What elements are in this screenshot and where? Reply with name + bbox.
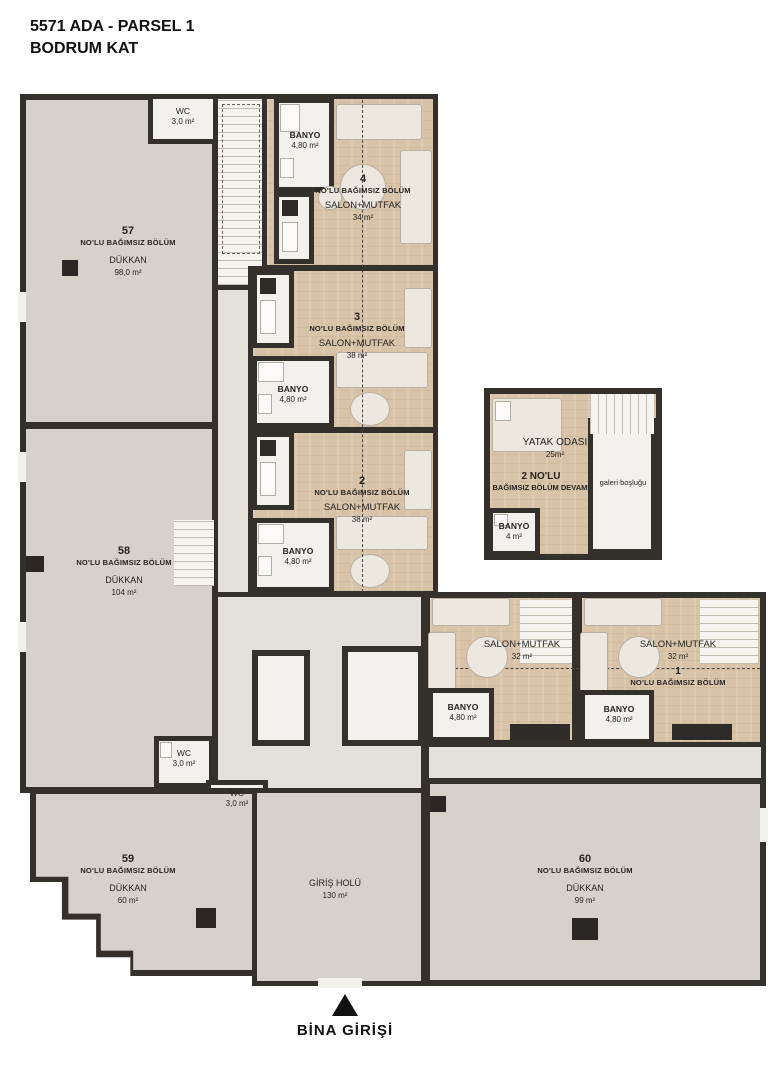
apartment-left-area: 32 m² bbox=[452, 652, 592, 662]
shop-59-number: 59 bbox=[38, 852, 218, 866]
wc-mid1-name: WC bbox=[156, 748, 212, 759]
label-bath-unit2: BANYO 4 m² bbox=[486, 521, 542, 542]
label-apartment-2: 2 NO'LU BAĞIMSIZ BÖLÜM SALON+MUTFAK 38 m… bbox=[287, 474, 437, 526]
window-opening bbox=[18, 622, 26, 652]
shop-60-number: 60 bbox=[495, 852, 675, 866]
label-bath-apartment-left: BANYO 4,80 m² bbox=[430, 702, 496, 723]
apartment-3-number: 3 bbox=[282, 310, 432, 324]
gallery-void-text: galeri boşluğu bbox=[592, 478, 654, 488]
apartment-3-area: 38 m² bbox=[282, 351, 432, 361]
shop-59-use: DÜKKAN bbox=[38, 883, 218, 895]
stove-icon bbox=[260, 278, 276, 294]
floor-plan: 5571 ADA - PARSEL 1 BODRUM KAT bbox=[0, 0, 768, 1086]
shop-60-area: 99 m² bbox=[495, 896, 675, 906]
entry-hall-name: GİRİŞ HOLÜ bbox=[275, 878, 395, 890]
bath-4-name: BANYO bbox=[274, 130, 336, 141]
bath-4-area: 4,80 m² bbox=[274, 141, 336, 151]
label-shop-59: 59 NO'LU BAĞIMSIZ BÖLÜM DÜKKAN 60 m² bbox=[38, 852, 218, 906]
apartment-4-number: 4 bbox=[288, 172, 438, 186]
shop-60-unit-label: NO'LU BAĞIMSIZ BÖLÜM bbox=[495, 866, 675, 876]
wc-top-area: 3,0 m² bbox=[150, 117, 216, 127]
shop-57-number: 57 bbox=[38, 224, 218, 238]
label-bedroom-unit2: YATAK ODASI 25m² bbox=[500, 436, 610, 460]
unit2-cont-line2: BAĞIMSIZ BÖLÜM DEVAMI bbox=[486, 483, 596, 493]
apartment-left-room: SALON+MUTFAK bbox=[452, 639, 592, 651]
sofa bbox=[432, 598, 510, 626]
door-opening bbox=[318, 978, 362, 988]
apartment-1-area: 32 m² bbox=[608, 652, 748, 662]
bath-2-area: 4,80 m² bbox=[263, 557, 333, 567]
elevator-shaft-2 bbox=[342, 646, 424, 746]
label-gallery-void: galeri boşluğu bbox=[592, 478, 654, 488]
entrance-label: BİNA GİRİŞİ bbox=[270, 1022, 420, 1039]
column bbox=[430, 796, 446, 812]
shop-58-use: DÜKKAN bbox=[34, 575, 214, 587]
bath-unit2-area: 4 m² bbox=[486, 532, 542, 542]
shower-icon bbox=[258, 362, 284, 382]
shop-60-use: DÜKKAN bbox=[495, 883, 675, 895]
apartment-4-unit-label: NO'LU BAĞIMSIZ BÖLÜM bbox=[288, 186, 438, 196]
apartment-4-area: 34 m² bbox=[288, 213, 438, 223]
bath-1-name: BANYO bbox=[586, 704, 652, 715]
entrance-arrow-icon bbox=[332, 994, 358, 1016]
kitchen-counter-icon bbox=[510, 724, 570, 740]
window-opening bbox=[760, 808, 768, 842]
shower-icon bbox=[280, 104, 300, 132]
bath-3-area: 4,80 m² bbox=[258, 395, 328, 405]
table bbox=[350, 554, 390, 588]
label-apartment-left-salon: SALON+MUTFAK 32 m² bbox=[452, 639, 592, 663]
kitchen-counter-icon bbox=[672, 724, 732, 740]
wc-mid1-area: 3,0 m² bbox=[156, 759, 212, 769]
shop-59-area: 60 m² bbox=[38, 896, 218, 906]
apartment-2-room: SALON+MUTFAK bbox=[287, 502, 437, 514]
shop-59-unit-label: NO'LU BAĞIMSIZ BÖLÜM bbox=[38, 866, 218, 876]
shower-icon bbox=[258, 524, 284, 544]
apartment-4-room: SALON+MUTFAK bbox=[288, 200, 438, 212]
elevator-shaft-1 bbox=[252, 650, 310, 746]
plan-title: 5571 ADA - PARSEL 1 BODRUM KAT bbox=[30, 16, 195, 61]
label-wc-mid1: WC 3,0 m² bbox=[156, 748, 212, 769]
label-bath-apartment-4: BANYO 4,80 m² bbox=[274, 130, 336, 151]
plan-title-line2: BODRUM KAT bbox=[30, 38, 195, 60]
plan-title-line1: 5571 ADA - PARSEL 1 bbox=[30, 16, 195, 38]
bath-unit2-name: BANYO bbox=[486, 521, 542, 532]
label-wc-mid2: WC 3,0 m² bbox=[208, 788, 266, 809]
sofa bbox=[584, 598, 662, 626]
shop-57-unit-label: NO'LU BAĞIMSIZ BÖLÜM bbox=[38, 238, 218, 248]
column bbox=[572, 918, 598, 940]
apartment-2-number: 2 bbox=[287, 474, 437, 488]
shop-58-unit-label: NO'LU BAĞIMSIZ BÖLÜM bbox=[34, 558, 214, 568]
entry-hall-area: 130 m² bbox=[275, 891, 395, 901]
table bbox=[350, 392, 390, 426]
label-shop-57: 57 NO'LU BAĞIMSIZ BÖLÜM DÜKKAN 98,0 m² bbox=[38, 224, 218, 278]
bath-1-area: 4,80 m² bbox=[586, 715, 652, 725]
label-wc-top: WC 3,0 m² bbox=[150, 106, 216, 127]
apartment-2-area: 38 m² bbox=[287, 515, 437, 525]
label-entry-hall: GİRİŞ HOLÜ 130 m² bbox=[275, 878, 395, 901]
apartment-1-number: 1 bbox=[608, 665, 748, 678]
column bbox=[196, 908, 216, 928]
label-bath-apartment-1: BANYO 4,80 m² bbox=[586, 704, 652, 725]
bath-left-area: 4,80 m² bbox=[430, 713, 496, 723]
apartment-3-unit-label: NO'LU BAĞIMSIZ BÖLÜM bbox=[282, 324, 432, 334]
label-bath-apartment-2: BANYO 4,80 m² bbox=[263, 546, 333, 567]
bath-2-name: BANYO bbox=[263, 546, 333, 557]
bedroom-name: YATAK ODASI bbox=[500, 436, 610, 449]
pillow-icon bbox=[495, 401, 511, 421]
label-apartment-4: 4 NO'LU BAĞIMSIZ BÖLÜM SALON+MUTFAK 34 m… bbox=[288, 172, 438, 224]
bedroom-area: 25m² bbox=[500, 450, 610, 460]
stairs-central-dash bbox=[222, 104, 260, 254]
apartment-3-room: SALON+MUTFAK bbox=[282, 338, 432, 350]
counter-icon bbox=[260, 300, 276, 334]
apartment-1-room: SALON+MUTFAK bbox=[608, 639, 748, 651]
shop-57-use: DÜKKAN bbox=[38, 255, 218, 267]
label-shop-58: 58 NO'LU BAĞIMSIZ BÖLÜM DÜKKAN 104 m² bbox=[34, 544, 214, 598]
counter-icon bbox=[260, 462, 276, 496]
bath-left-name: BANYO bbox=[430, 702, 496, 713]
sofa bbox=[336, 104, 422, 140]
label-apartment-1: SALON+MUTFAK 32 m² 1 NO'LU BAĞIMSIZ BÖLÜ… bbox=[608, 639, 748, 687]
apartment-2-unit-label: NO'LU BAĞIMSIZ BÖLÜM bbox=[287, 488, 437, 498]
building-entrance-marker: BİNA GİRİŞİ bbox=[270, 994, 420, 1039]
label-apartment-3: 3 NO'LU BAĞIMSIZ BÖLÜM SALON+MUTFAK 38 m… bbox=[282, 310, 432, 362]
apartment-1-unit-label: NO'LU BAĞIMSIZ BÖLÜM bbox=[608, 678, 748, 688]
window-opening bbox=[18, 452, 26, 482]
label-shop-60: 60 NO'LU BAĞIMSIZ BÖLÜM DÜKKAN 99 m² bbox=[495, 852, 675, 906]
wc-mid2-area: 3,0 m² bbox=[208, 799, 266, 809]
label-unit2-continuation: 2 NO'LU BAĞIMSIZ BÖLÜM DEVAMI bbox=[486, 470, 596, 493]
counter-icon bbox=[282, 222, 298, 252]
bath-3-name: BANYO bbox=[258, 384, 328, 395]
wc-top-name: WC bbox=[150, 106, 216, 117]
label-bath-apartment-3: BANYO 4,80 m² bbox=[258, 384, 328, 405]
unit2-cont-line1: 2 NO'LU bbox=[486, 470, 596, 483]
stairs-unit2 bbox=[590, 394, 654, 434]
window-opening bbox=[18, 292, 26, 322]
shop-58-area: 104 m² bbox=[34, 588, 214, 598]
wc-mid2-name: WC bbox=[208, 788, 266, 799]
shop-57-area: 98,0 m² bbox=[38, 268, 218, 278]
stove-icon bbox=[260, 440, 276, 456]
shop-58-number: 58 bbox=[34, 544, 214, 558]
